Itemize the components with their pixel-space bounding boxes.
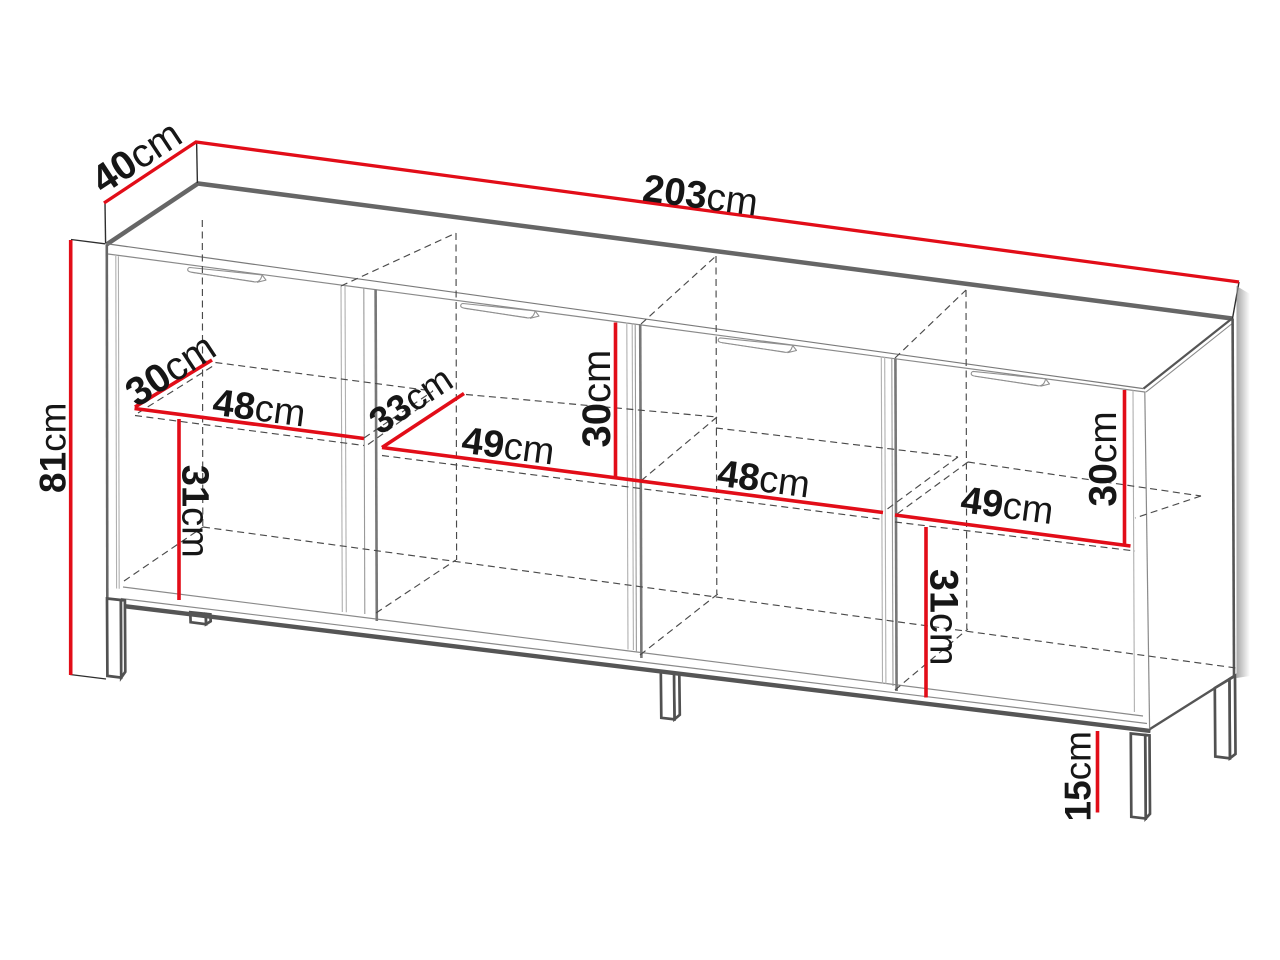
svg-text:31cm: 31cm (174, 465, 216, 558)
svg-text:203cm: 203cm (640, 167, 760, 225)
svg-text:48cm: 48cm (715, 453, 813, 507)
svg-text:31cm: 31cm (922, 569, 966, 666)
svg-text:40cm: 40cm (84, 112, 190, 203)
svg-text:30cm: 30cm (575, 350, 619, 448)
svg-text:48cm: 48cm (210, 382, 308, 436)
svg-text:30cm: 30cm (1082, 411, 1125, 506)
svg-text:81cm: 81cm (33, 403, 74, 493)
svg-text:15cm: 15cm (1058, 731, 1099, 821)
svg-text:49cm: 49cm (459, 420, 557, 474)
svg-text:30cm: 30cm (118, 325, 224, 416)
